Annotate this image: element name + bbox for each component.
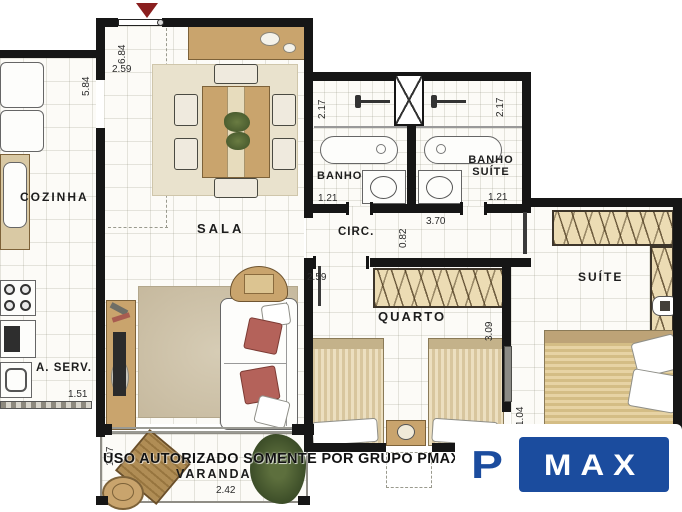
dim-kitchen-length: 5.84 <box>81 58 92 96</box>
dim-circ-length: 3.70 <box>426 216 445 227</box>
armchair-cushion <box>244 274 274 294</box>
stove-burner <box>4 300 15 311</box>
dining-chair <box>214 178 258 198</box>
door-jamb-tick <box>346 202 349 215</box>
suite-door-leaf <box>523 212 527 254</box>
sofa-pillow-red <box>243 317 283 355</box>
sofa-cushion-line <box>224 363 286 364</box>
fridge <box>0 62 44 108</box>
dim-hall-depth: 6.84 <box>117 26 128 64</box>
service-low-wall <box>0 401 92 409</box>
vanity-basin <box>370 176 397 199</box>
dim-aserv-width: 1.51 <box>68 389 87 400</box>
door-jamb-tick <box>460 202 463 215</box>
wardrobe-suite <box>650 246 674 338</box>
room-label-suite: SUÍTE <box>578 270 623 284</box>
shower-faucet <box>436 100 466 103</box>
dining-chair <box>174 94 198 126</box>
room-label-aserv: A. SERV. <box>36 362 92 374</box>
washer-drum <box>5 368 27 392</box>
room-label-sala: SALA <box>197 221 244 236</box>
wall <box>522 72 531 206</box>
bathtub-drain <box>436 144 446 154</box>
bathtub <box>320 136 398 164</box>
oven-door <box>4 326 20 352</box>
door-jamb-tick <box>366 256 369 269</box>
wall <box>304 18 313 218</box>
wardrobe-suite <box>552 210 674 246</box>
dim-banho-width: 1.21 <box>318 193 337 204</box>
room-label-banho-suite: BANHO SUÍTE <box>462 154 520 178</box>
room-label-varanda: VARANDA <box>176 467 252 481</box>
dim-quarto-width: 2.59 <box>307 272 326 283</box>
wall <box>306 204 348 213</box>
dim-circ-width: 0.82 <box>398 214 409 248</box>
floor-plan: COZINHA SALA BANHO BANHO SUÍTE CIRC. SUÍ… <box>0 0 682 512</box>
dim-banho-suite-height: 2.17 <box>495 81 506 117</box>
wall <box>96 496 108 505</box>
room-label-banho: BANHO <box>317 170 362 182</box>
table-plant <box>224 112 250 132</box>
wall <box>96 128 105 437</box>
bathtub-drain <box>376 144 386 154</box>
wall <box>372 204 462 213</box>
stove-burner <box>20 300 31 311</box>
wall <box>304 258 313 452</box>
dim-banho-height: 2.17 <box>317 83 328 119</box>
bed-pillow <box>311 418 379 447</box>
pmax-logo-box: MAX <box>519 437 669 492</box>
nightstand-lamp <box>397 424 415 440</box>
plant <box>250 434 306 504</box>
room-label-banho-suite-line1: BANHO <box>462 154 520 166</box>
dining-chair <box>214 64 258 84</box>
room-label-cozinha: COZINHA <box>20 190 89 204</box>
shower-faucet-handle <box>355 95 361 108</box>
decor-bowl <box>260 32 280 46</box>
sliding-glass-door <box>112 431 292 433</box>
dim-door-width: 1.04 <box>515 394 526 426</box>
pmax-logo-p: P <box>471 446 503 485</box>
table-plant <box>226 132 250 150</box>
room-label-banho-suite-line2: SUÍTE <box>462 166 520 178</box>
entry-door-hinge <box>157 19 164 26</box>
vanity-basin <box>426 176 453 199</box>
wall <box>292 424 314 435</box>
shower-faucet-handle <box>431 95 437 108</box>
bed-fold-band <box>309 339 383 349</box>
room-label-circ: CIRC. <box>338 226 374 238</box>
suite-lamp-dot <box>660 301 670 311</box>
quarto-suite-door-panel <box>504 346 512 402</box>
shower-glass-line <box>314 126 407 128</box>
dining-chair <box>272 138 296 170</box>
watermark-text: USO AUTORIZADO SOMENTE POR GRUPO PMAX <box>103 450 460 467</box>
dim-banho-suite-width: 1.21 <box>488 192 507 203</box>
dim-entry-width: 2.59 <box>112 64 131 75</box>
dining-chair <box>174 138 198 170</box>
entry-arrow-icon <box>136 3 158 18</box>
stove-burner <box>20 284 31 295</box>
wall <box>531 198 682 207</box>
wall <box>407 120 416 213</box>
tv <box>113 332 126 396</box>
room-label-quarto: QUARTO <box>378 309 446 324</box>
decor-bowl <box>283 43 296 53</box>
dining-chair <box>272 94 296 126</box>
pmax-logo-max: MAX <box>519 440 669 490</box>
wall <box>298 496 310 505</box>
wall <box>0 50 96 58</box>
entry-door <box>118 19 162 26</box>
door-jamb-tick <box>370 202 373 215</box>
shower-glass-line <box>416 126 522 128</box>
door-jamb-tick <box>313 256 316 269</box>
wardrobe-quarto <box>373 268 504 308</box>
fridge <box>0 110 44 152</box>
shower-faucet <box>360 100 390 103</box>
door-jamb-tick <box>484 202 487 215</box>
wall <box>162 18 312 27</box>
stove-burner <box>4 284 15 295</box>
wall <box>96 18 105 80</box>
sliding-glass-door <box>112 427 292 429</box>
duct-shaft <box>394 74 424 126</box>
dashed-projection-line <box>108 227 168 228</box>
ottoman-ring <box>112 483 134 501</box>
dim-quarto-depth: 3.09 <box>484 303 495 341</box>
dim-varanda-width: 2.42 <box>216 485 235 496</box>
pmax-logo: P MAX <box>455 424 682 512</box>
